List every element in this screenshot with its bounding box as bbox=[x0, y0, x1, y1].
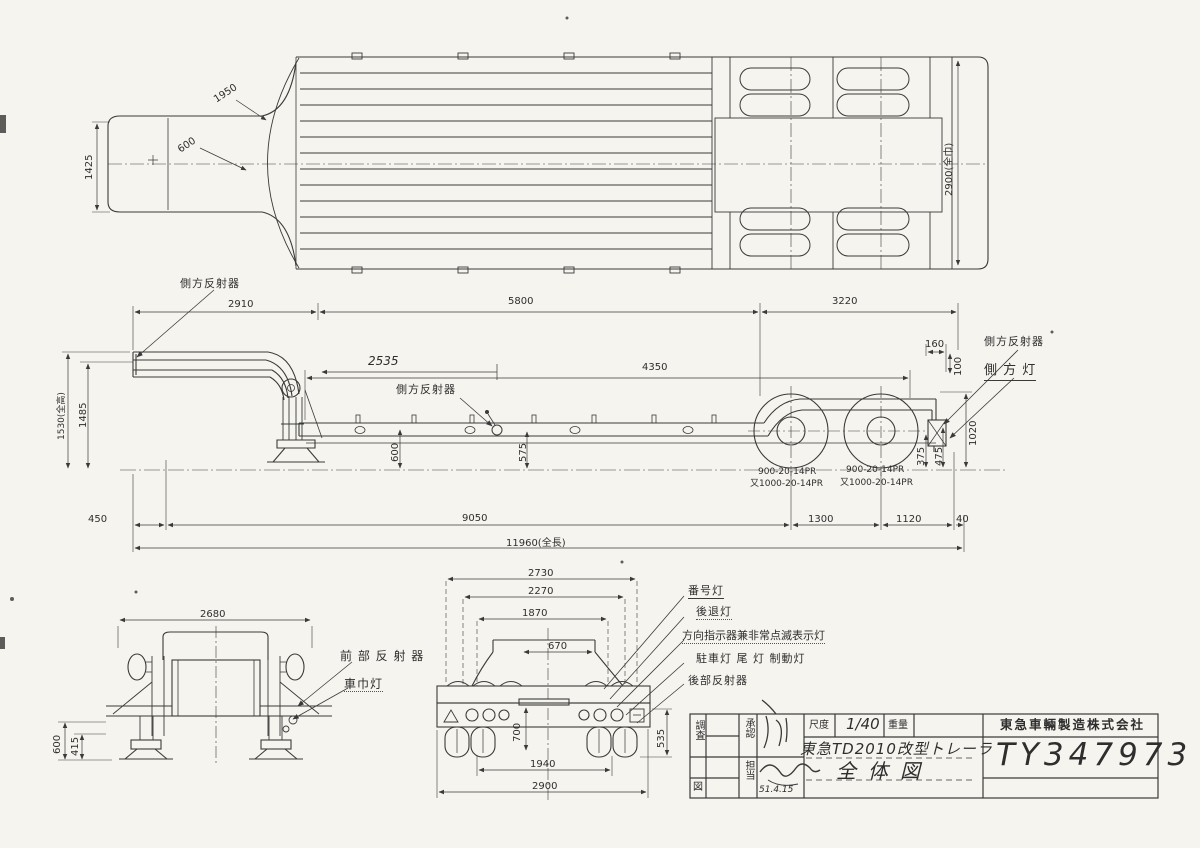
dim-side-1120: 1120 bbox=[896, 514, 921, 525]
label-turn-signal-lamp: 方向指示器兼非常点滅表示灯 bbox=[682, 630, 825, 644]
dim-front-600: 600 bbox=[52, 735, 63, 754]
dim-side-475: 475 bbox=[934, 447, 945, 466]
scan-artifacts bbox=[0, 17, 1054, 650]
dim-side-overall-length: 11960(全長) bbox=[506, 538, 566, 549]
label-rear-reflector: 後部反射器 bbox=[688, 675, 748, 687]
titleblock-company: 東急車輛製造株式会社 bbox=[1000, 718, 1145, 732]
dim-rear-2270: 2270 bbox=[528, 586, 553, 597]
blueprint-sheet: 1950 600 1425 2900(全巾) 側方反射器 2910 5800 3… bbox=[0, 0, 1200, 848]
dim-front-415: 415 bbox=[70, 737, 81, 756]
titleblock-drawing-label: 図 bbox=[693, 782, 703, 793]
tire-size-axle2-alt: 又1000-20-14PR bbox=[840, 479, 913, 489]
label-reverse-lamp: 後退灯 bbox=[696, 606, 732, 620]
dim-rear-1870: 1870 bbox=[522, 608, 547, 619]
dim-rear-535: 535 bbox=[656, 729, 667, 748]
dim-rear-670: 670 bbox=[548, 641, 567, 652]
dim-side-600: 600 bbox=[390, 443, 401, 462]
titleblock-drawing-title: 全体図 bbox=[836, 760, 932, 782]
dim-side-575: 575 bbox=[518, 443, 529, 462]
dim-front-2680: 2680 bbox=[200, 609, 225, 620]
label-clearance-lamp: 車巾灯 bbox=[344, 678, 383, 692]
tire-size-axle1-main: 900-20-14PR bbox=[758, 468, 816, 478]
dim-side-3220: 3220 bbox=[832, 296, 857, 307]
titleblock-date: 51.4.15 bbox=[759, 786, 793, 796]
dim-rear-2730: 2730 bbox=[528, 568, 553, 579]
dim-rear-2900: 2900 bbox=[532, 781, 557, 792]
dim-side-2910: 2910 bbox=[228, 299, 253, 310]
titleblock-approval-label: 承認 bbox=[743, 718, 753, 738]
titleblock-weight-label: 重量 bbox=[888, 720, 908, 731]
label-front-reflector: 前 部 反 射 器 bbox=[340, 650, 424, 663]
titleblock-charge-label: 担当 bbox=[743, 760, 753, 780]
label-side-reflector-mid: 側方反射器 bbox=[396, 384, 456, 396]
dim-side-40: 40 bbox=[956, 514, 969, 525]
dim-side-4350: 4350 bbox=[642, 362, 667, 373]
front-view bbox=[106, 626, 332, 765]
side-view bbox=[120, 352, 1005, 476]
titleblock-survey-label: 調査 bbox=[693, 720, 703, 740]
dim-side-1020: 1020 bbox=[968, 421, 979, 446]
tire-size-axle2-main: 900-20-14PR bbox=[846, 466, 904, 476]
label-side-reflector-front: 側方反射器 bbox=[180, 278, 240, 290]
dim-side-overall-height: 1530(全高) bbox=[58, 392, 68, 440]
dim-plan-overall-width: 2900(全巾) bbox=[944, 143, 955, 196]
titleblock-scale-label: 尺度 bbox=[809, 720, 829, 731]
dim-rear-1940: 1940 bbox=[530, 759, 555, 770]
dim-side-375: 375 bbox=[916, 447, 927, 466]
label-side-reflector-rear: 側方反射器 bbox=[984, 336, 1044, 348]
label-parking-tail-brake-lamp: 駐車灯 尾 灯 制動灯 bbox=[696, 653, 806, 665]
dim-side-100: 100 bbox=[953, 357, 964, 376]
rear-view bbox=[437, 628, 650, 802]
dim-rear-700: 700 bbox=[512, 723, 523, 742]
rear-dimensions bbox=[437, 579, 684, 798]
front-dimensions bbox=[58, 620, 352, 760]
dim-side-9050: 9050 bbox=[462, 513, 487, 524]
plan-view bbox=[108, 53, 988, 273]
dim-side-1485: 1485 bbox=[78, 403, 89, 428]
dim-side-160: 160 bbox=[925, 339, 944, 350]
label-license-plate-lamp: 番号灯 bbox=[688, 585, 724, 599]
dim-side-450: 450 bbox=[88, 514, 107, 525]
side-dimensions bbox=[62, 290, 1018, 552]
dim-plan-1425: 1425 bbox=[84, 155, 95, 180]
titleblock-product-title: 東急TD2010改型トレーラ bbox=[800, 741, 993, 758]
dim-side-5800: 5800 bbox=[508, 296, 533, 307]
dim-side-2535: 2535 bbox=[368, 355, 399, 368]
dim-side-1300: 1300 bbox=[808, 514, 833, 525]
titleblock-scale-value: 1/40 bbox=[846, 716, 880, 733]
label-side-lamp: 側 方 灯 bbox=[984, 364, 1036, 381]
tire-size-axle1-alt: 又1000-20-14PR bbox=[750, 480, 823, 490]
titleblock-drawing-number: TY347973 bbox=[996, 738, 1192, 772]
